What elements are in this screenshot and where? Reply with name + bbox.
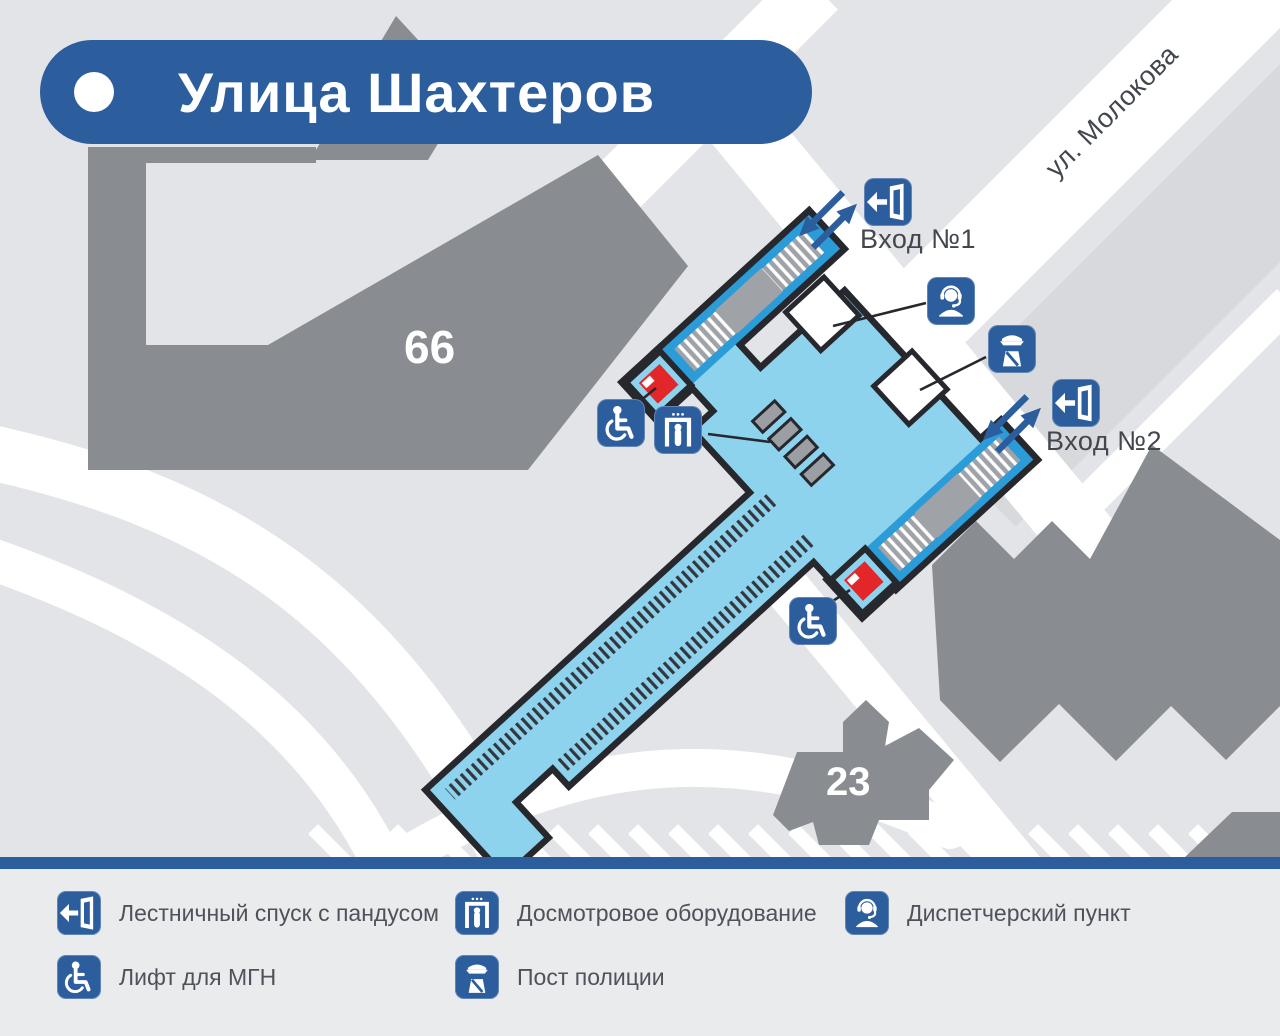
police-post-icon	[988, 325, 1036, 373]
entrance1-label: Вход №1	[860, 224, 976, 255]
wheelchair-lift-icon-2	[789, 597, 837, 645]
stairs-exit-icon	[57, 891, 101, 935]
legend-label: Досмотровое оборудование	[517, 891, 817, 935]
station-map-poster: Улица Шахтеров ул. Молокова 66 23 Вход №…	[0, 0, 1280, 1036]
legend: Лестничный спуск с пандусом Досмотровое …	[0, 869, 1280, 1036]
dispatcher-legend-icon	[845, 891, 889, 935]
dispatcher-icon	[927, 277, 975, 325]
legend-label: Лифт для МГН	[119, 955, 276, 999]
security-scanner-icon-map	[654, 406, 702, 454]
entrance1-exit-icon	[864, 178, 912, 226]
security-scanner-icon	[455, 891, 499, 935]
wheelchair-lift-icon-1	[597, 399, 645, 447]
legend-item-lift: Лифт для МГН	[57, 955, 276, 999]
legend-label: Пост полиции	[517, 955, 665, 999]
legend-separator-bar	[0, 857, 1280, 869]
station-title: Улица Шахтеров	[178, 60, 655, 125]
entrance2-exit-icon	[1052, 379, 1100, 427]
legend-item-scanner: Досмотровое оборудование	[455, 891, 817, 935]
wheelchair-lift-legend-icon	[57, 955, 101, 999]
legend-item-police: Пост полиции	[455, 955, 665, 999]
building-66-ledge	[88, 147, 316, 163]
entrance2-label: Вход №2	[1046, 426, 1162, 457]
legend-label: Диспетчерский пункт	[907, 891, 1131, 935]
legend-item-stairs: Лестничный спуск с пандусом	[57, 891, 439, 935]
station-dot	[74, 72, 114, 112]
building-66-label: 66	[404, 320, 455, 374]
station-title-pill: Улица Шахтеров	[40, 40, 812, 144]
legend-label: Лестничный спуск с пандусом	[119, 891, 439, 935]
police-post-legend-icon	[455, 955, 499, 999]
legend-item-dispatcher: Диспетчерский пункт	[845, 891, 1131, 935]
building-23-label: 23	[826, 760, 871, 805]
